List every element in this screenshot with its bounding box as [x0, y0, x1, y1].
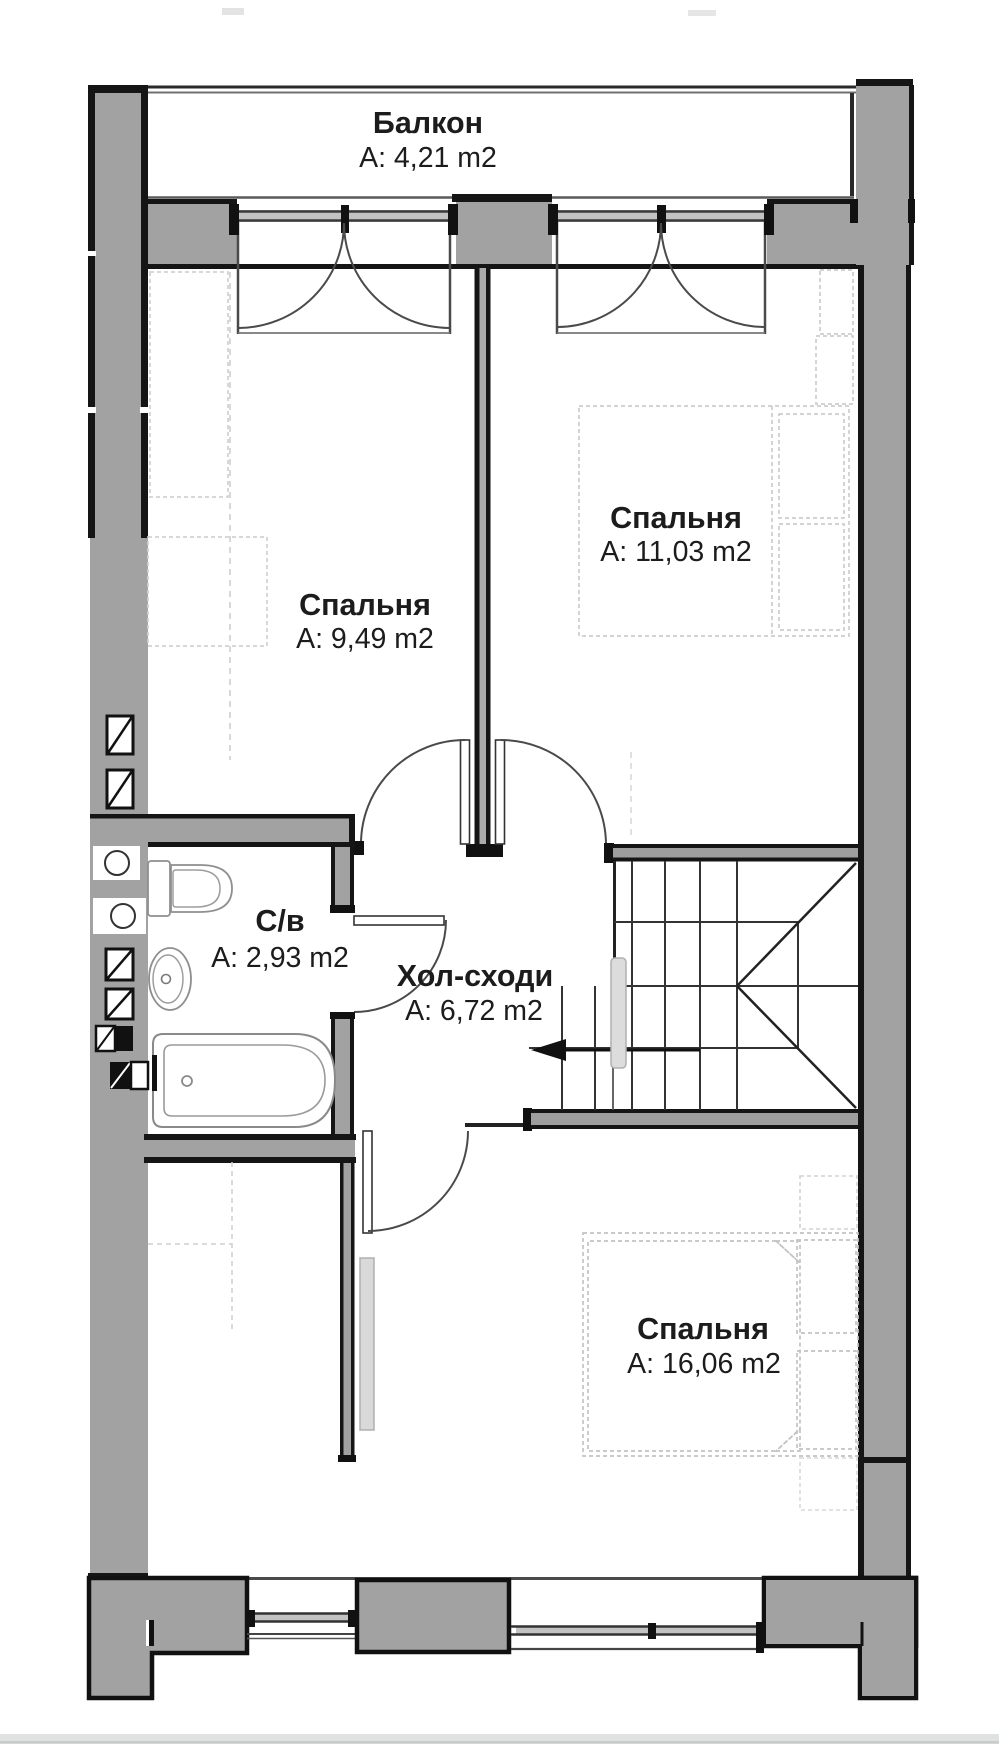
- svg-text:Спальня: Спальня: [610, 501, 742, 535]
- svg-text:Хол-сходи: Хол-сходи: [397, 959, 553, 993]
- svg-text:A: 2,93 m2: A: 2,93 m2: [211, 942, 349, 974]
- svg-text:A: 9,49 m2: A: 9,49 m2: [296, 623, 434, 655]
- svg-text:A: 16,06 m2: A: 16,06 m2: [627, 1348, 781, 1380]
- svg-text:Спальня: Спальня: [299, 588, 431, 622]
- svg-text:A: 11,03 m2: A: 11,03 m2: [600, 536, 752, 568]
- svg-text:A: 6,72 m2: A: 6,72 m2: [405, 995, 543, 1027]
- svg-text:A: 4,21 m2: A: 4,21 m2: [359, 142, 497, 174]
- svg-text:Спальня: Спальня: [637, 1312, 769, 1346]
- svg-text:Балкон: Балкон: [373, 106, 483, 140]
- svg-text:С/в: С/в: [255, 904, 304, 938]
